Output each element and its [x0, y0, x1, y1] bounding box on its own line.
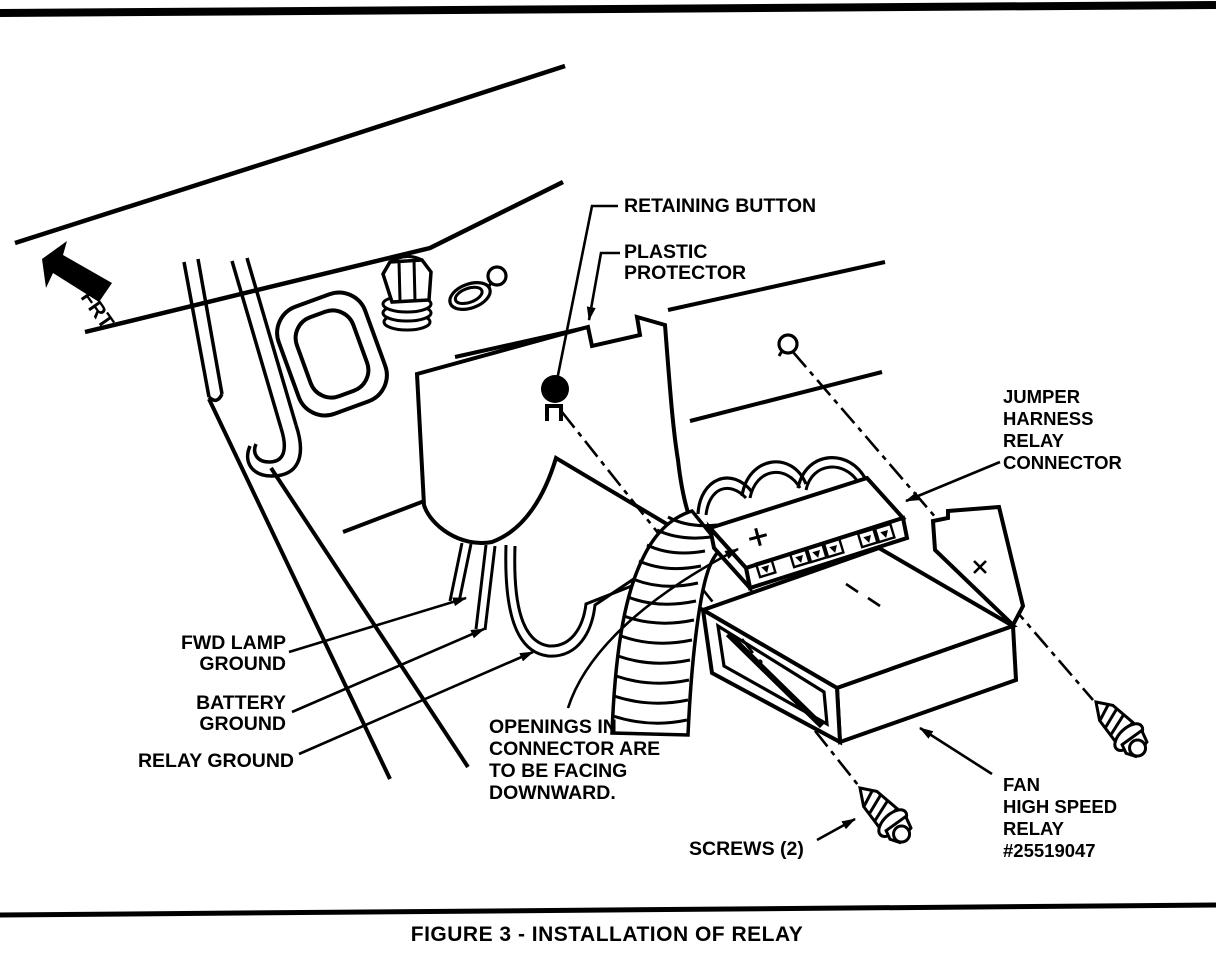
label-plastic-protector-1: PLASTIC [624, 241, 707, 263]
figure-caption: FIGURE 3 - INSTALLATION OF RELAY [411, 923, 803, 946]
label-jumper-2: HARNESS [1003, 408, 1093, 429]
top-border [0, 5, 1216, 13]
label-plastic-protector-2: PROTECTOR [624, 262, 746, 284]
retaining-button-dot [541, 375, 569, 403]
label-openings-2: CONNECTOR ARE [489, 738, 660, 760]
label-fan-relay-4: #25519047 [1003, 840, 1096, 861]
label-fan-relay-3: RELAY [1003, 818, 1065, 839]
label-openings-4: DOWNWARD. [489, 782, 616, 804]
figure-page: FRT [0, 0, 1216, 960]
label-jumper-4: CONNECTOR [1003, 452, 1122, 473]
label-screws: SCREWS (2) [689, 838, 804, 860]
relay-installation-diagram: FRT [0, 0, 1216, 960]
label-jumper-3: RELAY [1003, 430, 1065, 451]
small-hole [488, 267, 506, 288]
label-fwd-lamp-2: GROUND [199, 653, 286, 675]
label-jumper-1: JUMPER [1003, 386, 1080, 407]
label-openings-1: OPENINGS IN [489, 716, 617, 738]
label-fan-relay-2: HIGH SPEED [1003, 796, 1117, 817]
label-fwd-lamp-1: FWD LAMP [181, 632, 286, 654]
leader-screws [817, 819, 855, 840]
plastic-protector-panel [417, 317, 702, 545]
label-battery-1: BATTERY [196, 692, 286, 714]
hex-bolt [383, 256, 431, 330]
label-openings-3: TO BE FACING [489, 760, 627, 782]
mounting-screw-2 [1084, 690, 1157, 764]
bottom-rule [0, 905, 1216, 915]
label-retaining-button: RETAINING BUTTON [624, 195, 816, 217]
cowl-lower-line [690, 372, 882, 421]
label-battery-2: GROUND [199, 713, 286, 735]
small-oval-hole [446, 278, 494, 315]
frt-arrow-icon [42, 241, 112, 302]
leader-plastic-protector [589, 253, 620, 320]
pillar-channel [184, 259, 222, 400]
label-fan-relay-1: FAN [1003, 774, 1040, 795]
fender-edge-line [15, 66, 565, 243]
label-relay-ground: RELAY GROUND [138, 750, 294, 772]
leader-fan-relay [920, 728, 992, 774]
leader-jumper-connector [906, 462, 1000, 501]
mounting-screw-1 [848, 776, 921, 850]
